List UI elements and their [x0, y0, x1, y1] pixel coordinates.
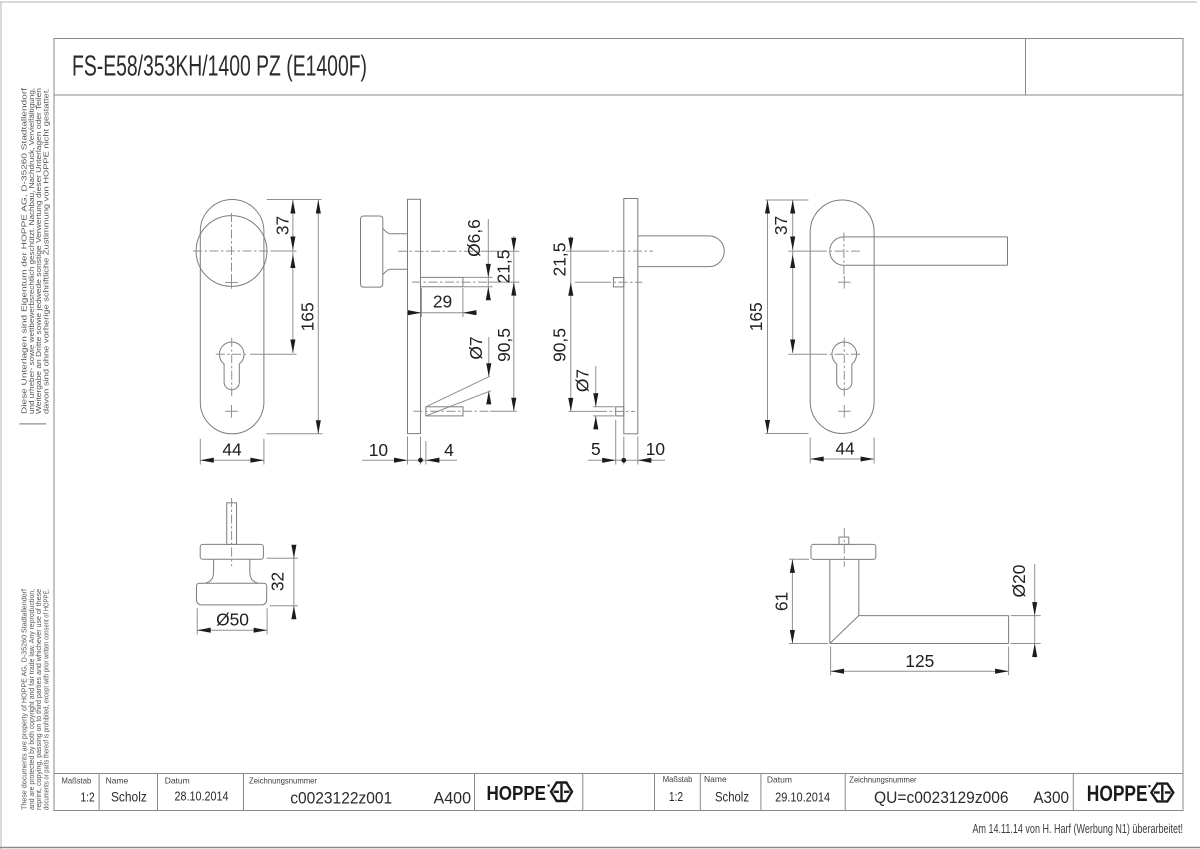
svg-text:Name: Name [704, 774, 727, 784]
svg-text:HOPPE: HOPPE [487, 782, 547, 805]
svg-text:Datum: Datum [165, 776, 190, 786]
svg-text:Zeichnungsnummer: Zeichnungsnummer [849, 775, 916, 785]
svg-text:28.10.2014: 28.10.2014 [175, 789, 229, 804]
svg-text:21,5: 21,5 [550, 243, 570, 277]
svg-text:Ø6,6: Ø6,6 [464, 219, 484, 257]
svg-text:37: 37 [771, 216, 791, 235]
svg-text:A300: A300 [1033, 789, 1069, 807]
svg-text:125: 125 [905, 651, 934, 671]
svg-text:29: 29 [433, 292, 452, 312]
svg-text:1:2: 1:2 [80, 790, 94, 805]
svg-text:4: 4 [444, 440, 454, 460]
svg-text:Name: Name [106, 776, 129, 786]
svg-text:90,5: 90,5 [550, 328, 570, 362]
svg-text:Zeichnungsnummer: Zeichnungsnummer [249, 776, 317, 786]
svg-text:Scholz: Scholz [715, 790, 749, 805]
svg-text:32: 32 [268, 572, 288, 591]
svg-text:21,5: 21,5 [494, 250, 514, 284]
svg-text:10: 10 [646, 439, 665, 459]
svg-text:Ø20: Ø20 [1009, 565, 1029, 598]
svg-text:29.10.2014: 29.10.2014 [775, 790, 830, 805]
svg-text:10: 10 [369, 440, 388, 460]
svg-text:1:2: 1:2 [669, 789, 683, 804]
svg-text:37: 37 [273, 216, 293, 235]
svg-text:Am 14.11.14 von H. Harf (Werbu: Am 14.11.14 von H. Harf (Werbung N1) übe… [973, 821, 1184, 836]
svg-text:Maßstab: Maßstab [663, 774, 693, 784]
svg-text:Datum: Datum [767, 775, 792, 785]
svg-text:A400: A400 [434, 790, 472, 808]
svg-text:44: 44 [222, 440, 242, 460]
svg-text:90,5: 90,5 [494, 328, 514, 362]
svg-text:165: 165 [746, 302, 766, 331]
svg-text:documents or parts thereof is: documents or parts thereof is prohibited… [41, 589, 50, 810]
svg-text:Maßstab: Maßstab [62, 776, 92, 786]
svg-text:Scholz: Scholz [111, 790, 147, 805]
svg-text:61: 61 [772, 592, 792, 611]
svg-text:Ø7: Ø7 [466, 336, 486, 359]
svg-text:Ø50: Ø50 [216, 610, 249, 630]
svg-text:FS-E58/353KH/1400 PZ (E1400F): FS-E58/353KH/1400 PZ (E1400F) [72, 51, 367, 83]
svg-text:Ø7: Ø7 [573, 369, 593, 392]
svg-text:165: 165 [298, 302, 318, 331]
svg-text:c0023122z001: c0023122z001 [290, 790, 392, 808]
svg-text:HOPPE: HOPPE [1087, 781, 1148, 806]
svg-text:QU=c0023129z006: QU=c0023129z006 [874, 789, 1009, 807]
svg-text:davon sind ohne vorherige schr: davon sind ohne vorherige schriftliche Z… [41, 88, 50, 414]
svg-text:5: 5 [591, 439, 601, 459]
svg-text:44: 44 [835, 439, 855, 459]
